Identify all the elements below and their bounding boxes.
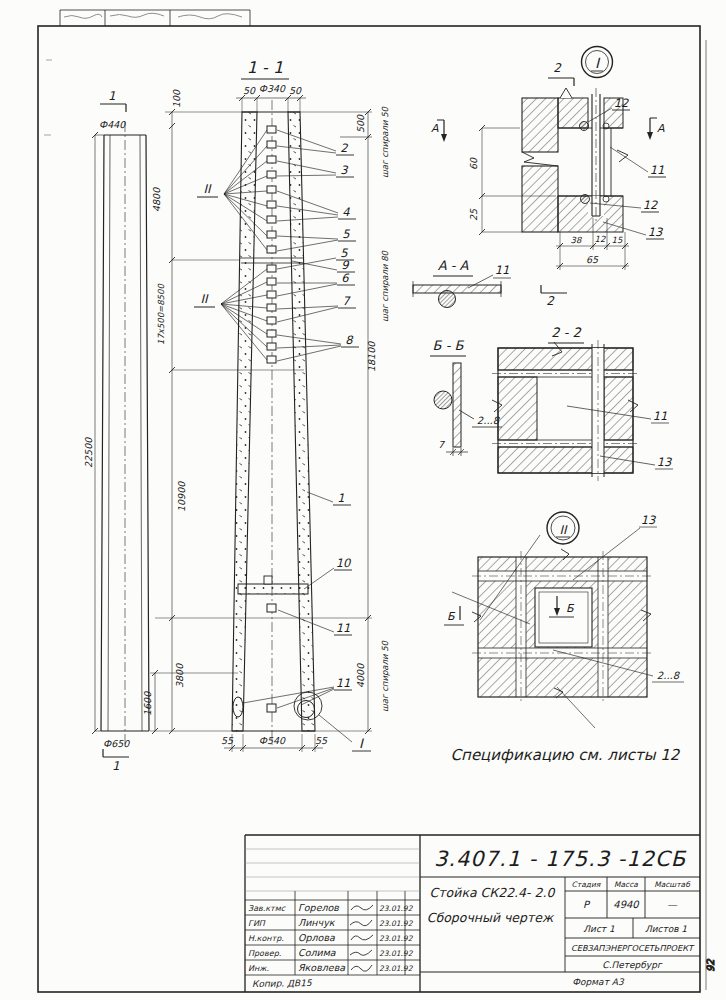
signature-rows: Зав.ктмс Горелов 23.01.92 ГИП Линчук 23.… [248, 902, 414, 973]
section-mark-1-bottom: 1 [112, 759, 120, 773]
dim-bottom-dia: Ф540 [259, 735, 286, 746]
dim-top-50-left: 50 [243, 85, 256, 96]
section-mark-1-top: 1 [108, 89, 116, 103]
sig-name-4: Яковлева [298, 962, 345, 973]
top-dimension [236, 95, 306, 112]
right-dim-chain [340, 109, 372, 734]
callout-range-detII: 2...8 [657, 670, 681, 681]
callout-6: 6 [341, 271, 350, 285]
specification-note: Спецификацию см. листы 12 [451, 746, 681, 764]
callout-4: 4 [342, 205, 350, 219]
mass-header: Масса [614, 880, 638, 889]
dim-3800: 3800 [174, 663, 185, 688]
sheet-frame: 92 [38, 10, 716, 992]
sig-date-0: 23.01.92 [379, 904, 414, 913]
pole-bottom-diameter: Ф650 [103, 738, 130, 749]
sig-date-1: 23.01.92 [379, 919, 414, 928]
callout-8: 8 [345, 333, 354, 347]
doc-number: 3.407.1 - 175.3 -12СБ [434, 847, 687, 871]
rebar-flag-upper-label: II [203, 182, 212, 196]
cut-marker-A-left-label: А [431, 122, 439, 135]
spiral-pitch-top: шаг спирали 50 [380, 105, 390, 178]
callout-3: 3 [340, 163, 349, 177]
scale-header: Масштаб [654, 880, 691, 889]
dim-bottom-55-right: 55 [315, 735, 328, 746]
stage-value: Р [583, 899, 591, 910]
spiral-pitch-bottom: шаг спирали 50 [380, 639, 390, 712]
dim-4800: 4800 [151, 187, 162, 212]
callout-11-detail: 11 [650, 163, 665, 177]
drawing-canvas: 92 1 Ф440 22500 Ф650 1 1 - 1 [0, 0, 726, 1000]
section-1-1-label: 1 - 1 [247, 58, 283, 77]
main-section-1-1: 1 - 1 [142, 58, 390, 752]
doc-type: Сборочный чертеж [427, 910, 555, 925]
section-A-A: А - А 11 [413, 258, 511, 308]
sheet-format: Формат А3 [572, 977, 625, 987]
organization-name: СЕВЗАПЭНЕРГОСЕТЬПРОЕКТ [571, 943, 695, 953]
sig-name-3: Солима [298, 947, 336, 958]
cut-marker-B-left: Б [444, 606, 464, 625]
callout-10: 10 [336, 556, 352, 570]
callout-1: 1 [337, 491, 344, 505]
callout-11b: 11 [336, 676, 351, 690]
sig-role-3: Провер. [248, 949, 281, 958]
dim-top-dia: Ф340 [259, 83, 286, 94]
pole-wall-right [288, 112, 315, 731]
callout-12-bottom: 12 [643, 198, 658, 212]
section-A-A-label: А - А [438, 258, 469, 273]
detail-I-title: I [595, 55, 601, 71]
scale-value: — [667, 899, 678, 910]
dim-60: 60 [468, 157, 479, 170]
callout-5: 5 [342, 227, 350, 241]
section-2-2-label: 2 - 2 [551, 325, 581, 340]
sig-role-0: Зав.ктмс [248, 904, 286, 913]
rebar-flag-lower: II [194, 269, 267, 360]
organization-city: С.Петербург [602, 960, 663, 970]
callout-11-aa: 11 [495, 263, 510, 277]
callout-13-detII: 13 [641, 513, 657, 527]
drawing-sheet: 92 1 Ф440 22500 Ф650 1 1 - 1 [0, 0, 726, 1000]
stamp-scribble [44, 13, 242, 135]
cut-marker-A-left: А [431, 120, 447, 142]
mass-value: 4940 [613, 899, 640, 910]
sheet-count: Листов 1 [645, 924, 687, 934]
sig-role-1: ГИП [248, 919, 266, 928]
callout-2: 2 [340, 141, 348, 155]
cut-marker-B-left-label: Б [447, 610, 456, 623]
dim-18100: 18100 [366, 341, 377, 372]
handwritten-note: Копир. ДВ15 [252, 978, 313, 989]
title-block: 3.407.1 - 175.3 -12СБ Стойка СК22.4- 2.0… [245, 835, 700, 992]
pole-elevation-view: 1 Ф440 22500 Ф650 1 [83, 89, 149, 773]
section-mark-2-bottom: 2 [546, 294, 555, 308]
callout-11-22: 11 [653, 409, 668, 423]
sig-name-1: Линчук [298, 917, 336, 928]
section-mark-2-top: 2 [553, 61, 562, 75]
callout-13-22: 13 [657, 455, 673, 469]
callout-11a: 11 [336, 621, 351, 635]
dim-1600: 1600 [142, 691, 153, 716]
dim-38: 38 [571, 235, 583, 245]
sig-name-2: Орлова [298, 932, 335, 943]
dim-15: 15 [612, 235, 623, 245]
callout-13-detail: 13 [648, 225, 664, 239]
section-B-B: Б - Б 2...8 7 [430, 338, 502, 456]
spiral-pitch-mid: шаг спирали 80 [380, 249, 390, 322]
section-B-B-label: Б - Б [433, 338, 465, 353]
sig-date-2: 23.01.92 [379, 934, 414, 943]
product-name: Стойка СК22.4- 2.0 [430, 885, 556, 900]
dim-100: 100 [171, 89, 182, 108]
dim-10900: 10900 [176, 481, 187, 512]
section-2-2: 2 - 2 11 13 [492, 325, 673, 481]
sig-name-0: Горелов [298, 902, 339, 913]
rebar-flag-lower-label: II [200, 292, 209, 306]
callout-12-top: 12 [614, 96, 629, 110]
callout-7: 7 [342, 294, 351, 308]
sig-date-3: 23.01.92 [379, 949, 414, 958]
dim-25: 25 [468, 208, 479, 221]
detail-II-title: II [559, 523, 568, 537]
cut-marker-A-right: А [647, 118, 665, 140]
dim-bottom-55-left: 55 [221, 735, 234, 746]
dim-12: 12 [595, 234, 606, 244]
sheet-number: Лист 1 [583, 924, 615, 934]
dim-4000: 4000 [355, 663, 366, 688]
pole-length-dim: 22500 [83, 437, 94, 468]
dim-8500: 17х500=8500 [156, 283, 166, 345]
dim-500: 500 [355, 114, 366, 133]
sig-role-4: Инж. [248, 964, 269, 973]
pole-top-diameter: Ф440 [99, 119, 126, 130]
detail-II: II 13 2...8 Б [444, 512, 684, 728]
callout-range-bb: 2...8 [477, 415, 501, 426]
sheet-side-number: 92 [705, 959, 716, 972]
detail-I-ref: I [359, 736, 364, 751]
pole-wall-left [232, 112, 257, 731]
cut-marker-A-right-label: А [657, 122, 665, 135]
sig-date-4: 23.01.92 [379, 964, 414, 973]
stirrup-squares [267, 126, 276, 712]
dim-65: 65 [586, 254, 599, 265]
dim-top-50-right: 50 [289, 85, 302, 96]
dim-7-bb: 7 [438, 439, 445, 450]
stage-header: Стадия [572, 880, 601, 889]
sig-role-2: Н.контр. [248, 934, 284, 943]
